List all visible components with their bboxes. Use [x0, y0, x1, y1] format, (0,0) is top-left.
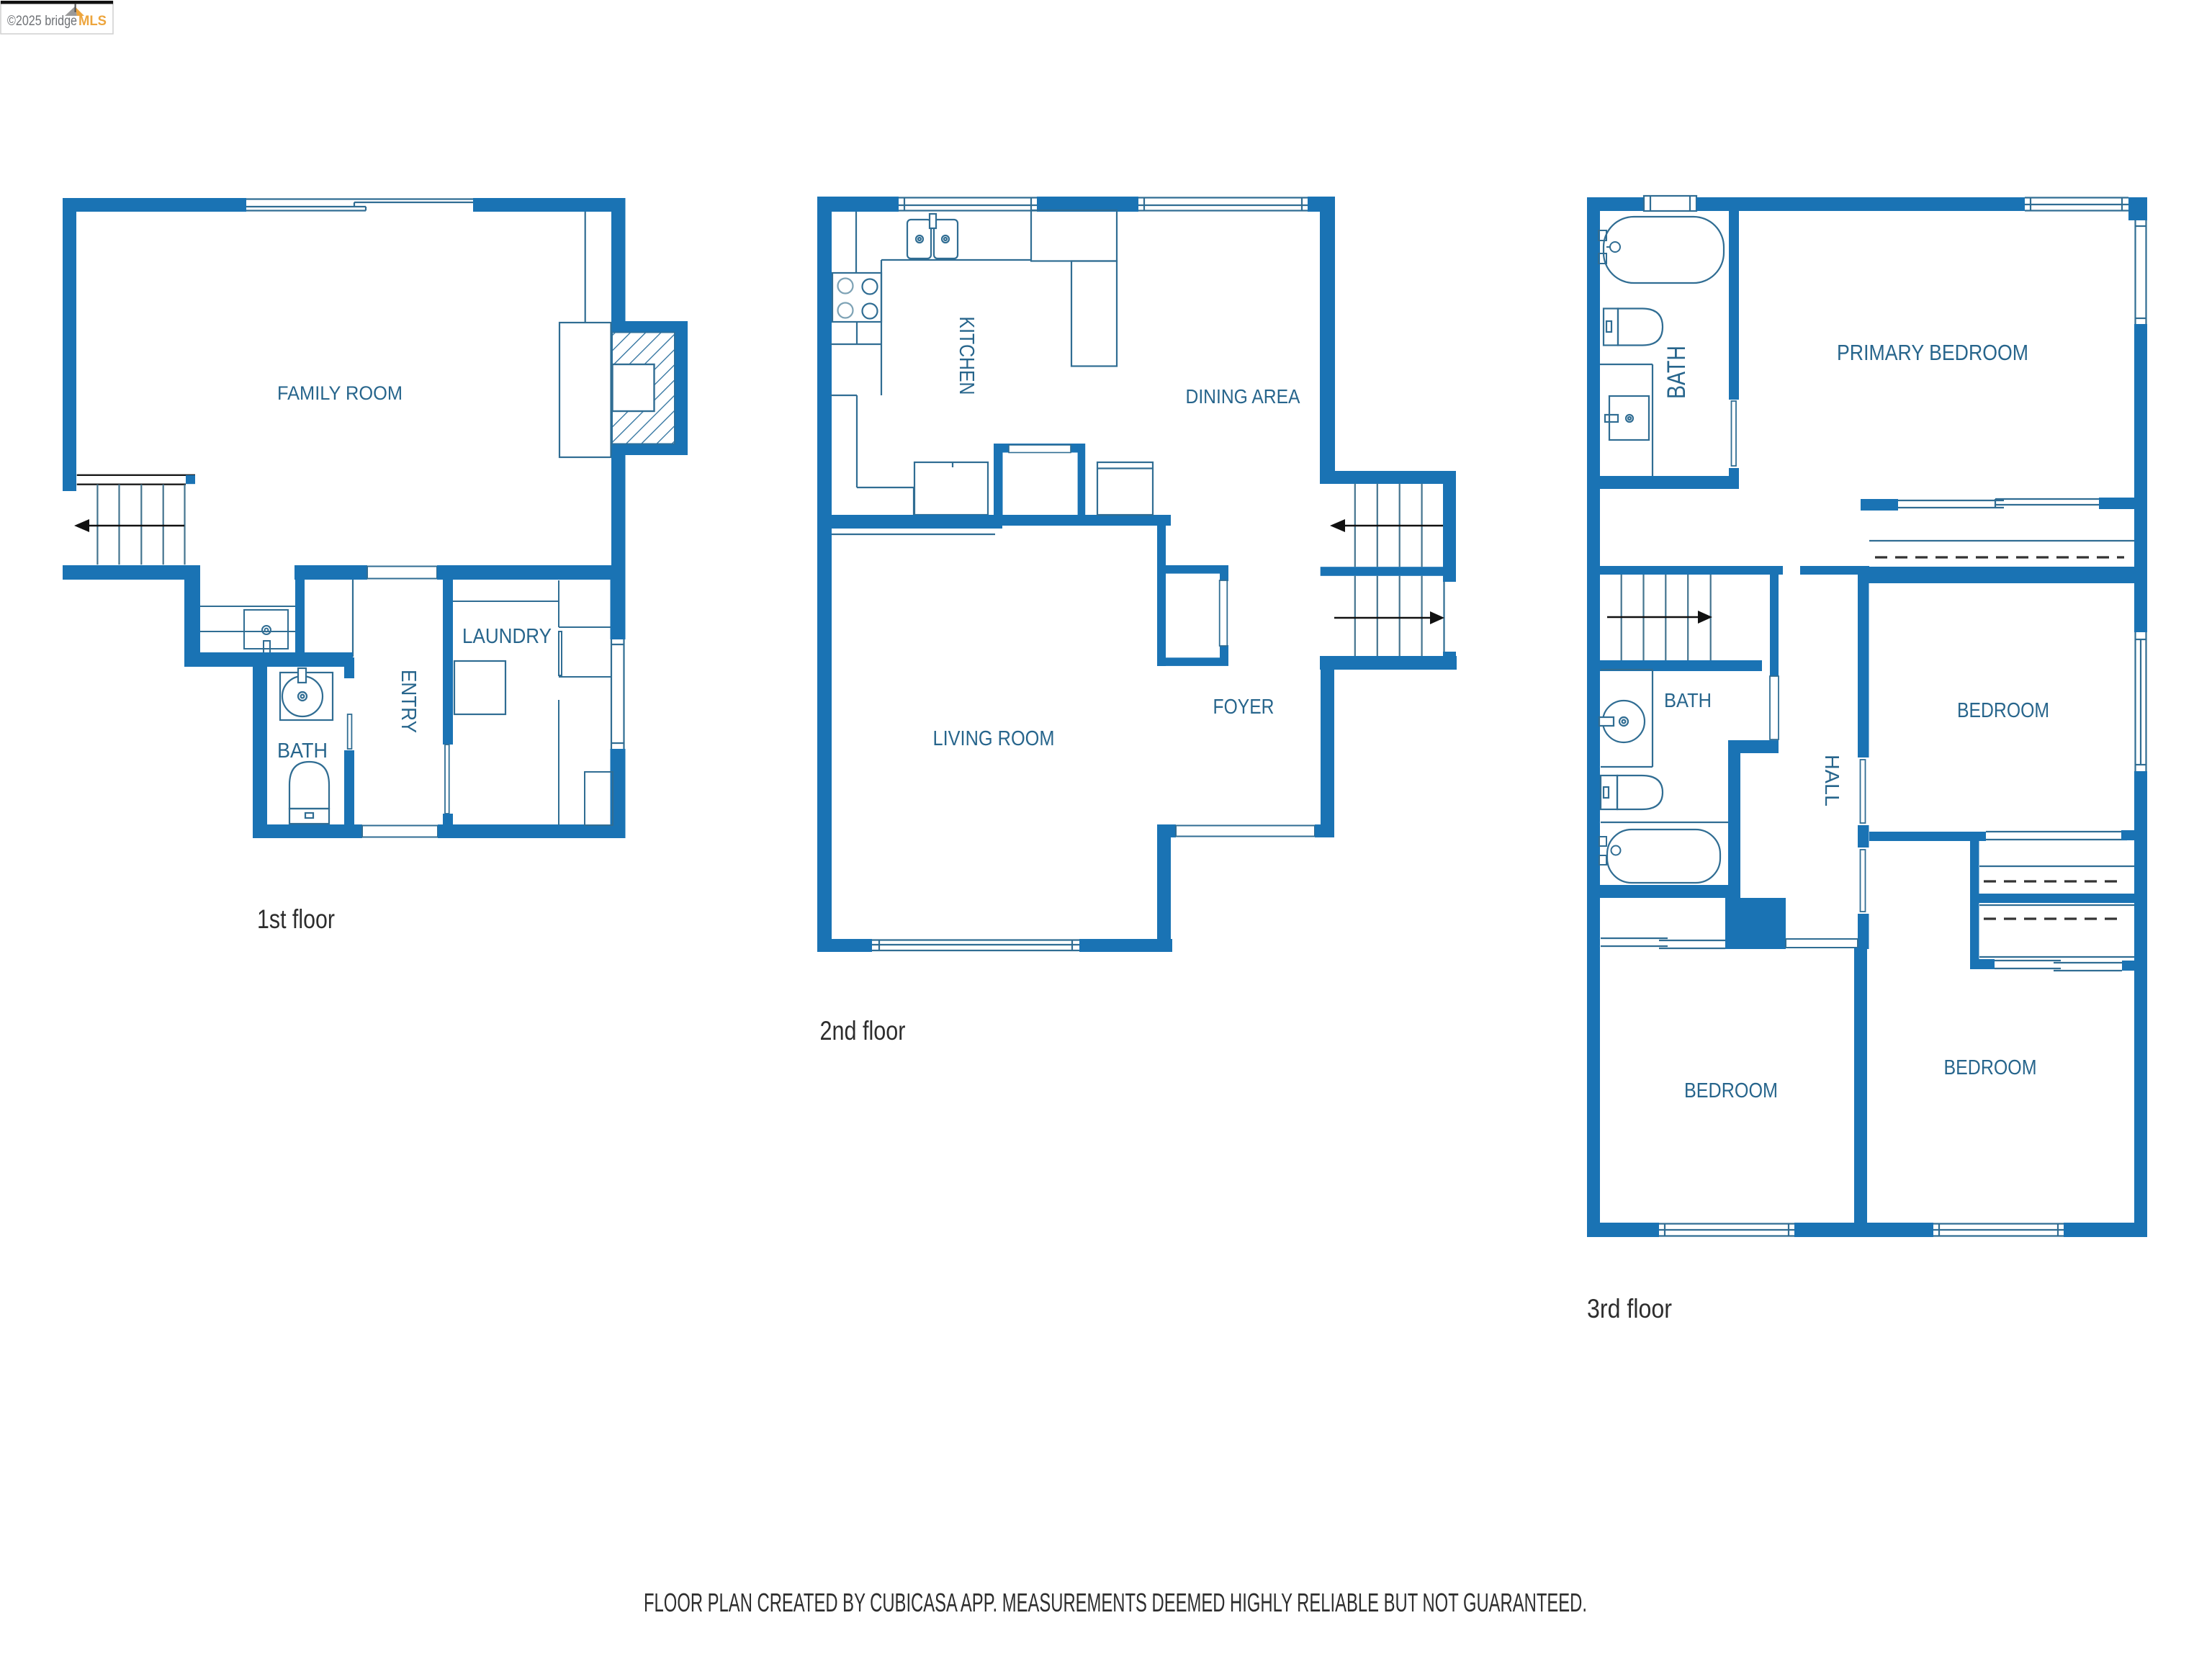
svg-text:LAUNDRY: LAUNDRY: [462, 625, 552, 648]
svg-text:FOYER: FOYER: [1213, 696, 1274, 719]
svg-text:FLOOR PLAN CREATED BY CUBICASA: FLOOR PLAN CREATED BY CUBICASA APP. MEAS…: [644, 1588, 1587, 1617]
svg-text:2nd floor: 2nd floor: [820, 1016, 906, 1046]
svg-text:BEDROOM: BEDROOM: [1957, 699, 2049, 722]
svg-text:1st floor: 1st floor: [257, 904, 335, 934]
svg-text:LIVING ROOM: LIVING ROOM: [933, 727, 1055, 750]
svg-text:PRIMARY BEDROOM: PRIMARY BEDROOM: [1837, 340, 2028, 365]
svg-text:KITCHEN: KITCHEN: [955, 317, 978, 395]
svg-text:3rd floor: 3rd floor: [1587, 1294, 1672, 1323]
svg-text:BATH: BATH: [1663, 346, 1691, 399]
svg-text:©2025 bridge: ©2025 bridge: [7, 14, 77, 29]
svg-text:BATH: BATH: [1664, 689, 1712, 711]
svg-text:BEDROOM: BEDROOM: [1684, 1079, 1778, 1102]
svg-text:MLS: MLS: [78, 14, 107, 29]
svg-text:BEDROOM: BEDROOM: [1944, 1056, 2037, 1079]
svg-text:ENTRY: ENTRY: [397, 670, 420, 733]
svg-text:BATH: BATH: [277, 739, 328, 763]
svg-text:FAMILY ROOM: FAMILY ROOM: [277, 382, 403, 404]
svg-text:HALL: HALL: [1821, 755, 1843, 806]
svg-text:DINING AREA: DINING AREA: [1186, 385, 1300, 408]
